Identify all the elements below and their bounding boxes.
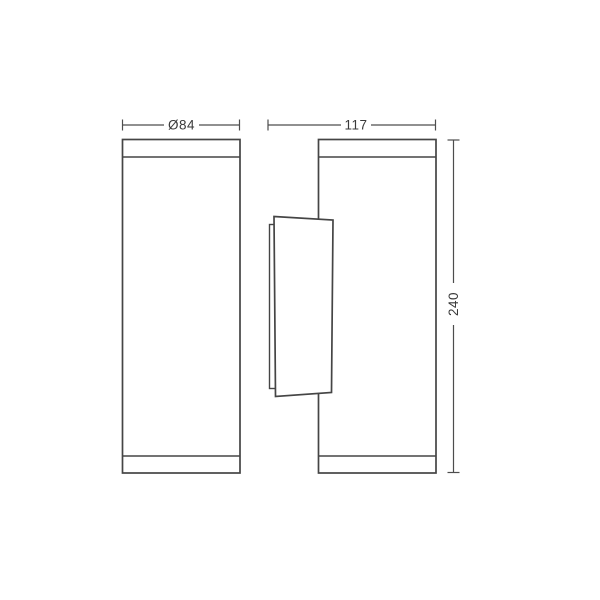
side-view-outline <box>319 140 437 474</box>
side-view <box>270 140 437 474</box>
front-view-outline <box>123 140 241 474</box>
depth-dimension: 117 <box>268 118 436 133</box>
front-view <box>123 140 241 474</box>
diameter-dimension: Ø84 <box>123 118 240 133</box>
dimension-drawing: Ø84 117 240 <box>0 0 600 600</box>
depth-dimension-label: 117 <box>344 118 367 133</box>
height-dimension-label: 240 <box>446 292 461 316</box>
wall-mount-plate <box>274 217 333 397</box>
diameter-dimension-label: Ø84 <box>168 118 195 133</box>
height-dimension: 240 <box>446 140 461 473</box>
technical-drawing-canvas: Ø84 117 240 <box>0 0 600 600</box>
